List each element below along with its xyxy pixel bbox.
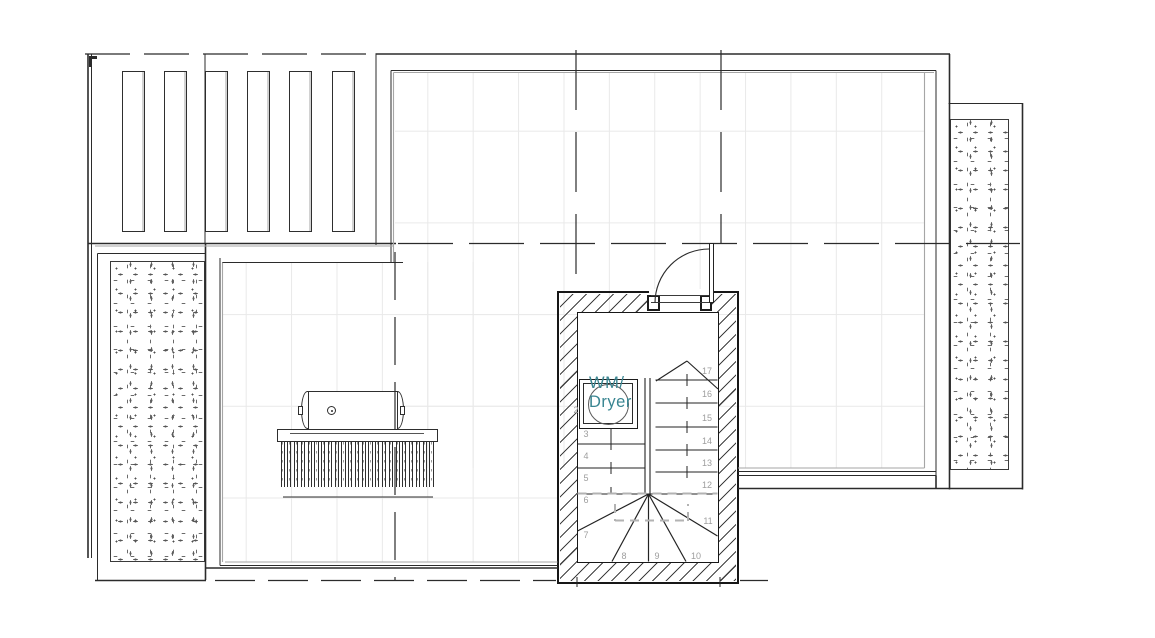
tread-number: 14 — [702, 436, 712, 446]
appliance-label-line1: WM/ — [589, 374, 624, 393]
plan-linework — [0, 0, 1155, 638]
door-swing-arc — [655, 249, 709, 303]
tread-number: 3 — [583, 429, 588, 439]
tread-number: 5 — [583, 473, 588, 483]
tread-number: 15 — [702, 413, 712, 423]
appliance-label-line2: Dryer — [589, 393, 632, 412]
floor-plan: 2 — [0, 0, 1155, 638]
door-leaf — [709, 243, 715, 303]
tread-number: 9 — [654, 551, 659, 561]
tread-number: 16 — [702, 389, 712, 399]
tread-number: 8 — [621, 551, 626, 561]
tread-number: 12 — [702, 480, 712, 490]
tread-number: 13 — [702, 458, 712, 468]
tread-number: 11 — [703, 516, 712, 526]
tread-number: 6 — [583, 495, 588, 505]
tread-number: 4 — [583, 451, 588, 461]
tread-number: 17 — [702, 366, 712, 376]
tread-number: 10 — [691, 551, 701, 561]
tread-number: 7 — [583, 530, 588, 540]
